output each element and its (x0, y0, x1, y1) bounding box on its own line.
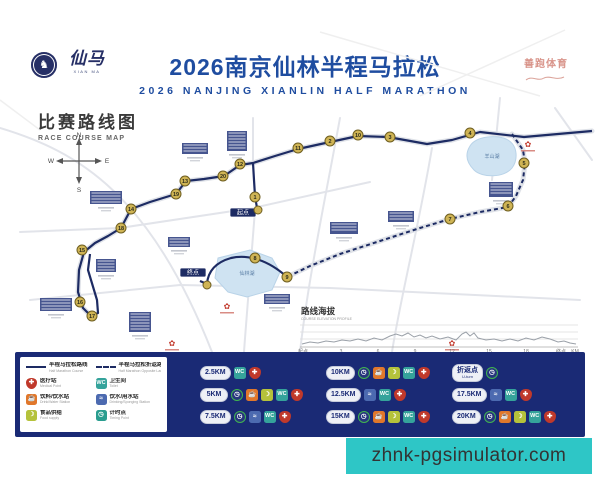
map-section-title: 比赛路线图 RACE COURSE MAP (38, 108, 138, 142)
svg-text:18: 18 (118, 226, 124, 232)
km-marker: 10 (353, 130, 363, 140)
km-station-row: 2.5KMWC✚ (200, 362, 326, 384)
svg-text:✿: ✿ (449, 339, 456, 348)
km-marker: 5 (519, 158, 529, 168)
route-solid-main (78, 131, 592, 316)
svg-text:7: 7 (448, 217, 451, 223)
legend-item-label-zh: 食品供给 (40, 410, 62, 417)
km-marker: 4 (465, 128, 475, 138)
km-station-row: 15KM◷☕☽WC✚ (326, 406, 452, 428)
svg-text:6: 6 (506, 204, 509, 210)
km-marker: 19 (171, 189, 181, 199)
timer-icon: ◷ (358, 367, 370, 379)
sponge-icon: ≈ (364, 389, 376, 401)
building-icon (388, 211, 414, 229)
start-point-label: 起点 (230, 208, 256, 217)
building-icon (264, 294, 290, 311)
km-station-row: 7.5KM◷≈WC✚ (200, 406, 326, 428)
main-road (78, 131, 592, 316)
elevation-title: 路线海拔 (301, 306, 336, 316)
legend-item-label-zh: 半程马拉松折返路线 (119, 362, 162, 369)
svg-text:10: 10 (355, 133, 361, 139)
svg-text:9: 9 (285, 275, 288, 281)
legend-panel: 半程马拉松路线Half Marathon Course半程马拉松折返路线Half… (20, 357, 167, 432)
elevation-gridlines (300, 325, 578, 339)
legend-item-label-en: Half Marathon Opposite Lane (119, 369, 162, 373)
legend-item-label-en: Drink/Water Station (40, 400, 70, 404)
medical-icon: ✚ (394, 389, 406, 401)
timer-icon: ◷ (231, 389, 243, 401)
scenic-spot-icons: ✿✿✿✿ (165, 140, 535, 351)
km-label-pill: 17.5KM (452, 388, 487, 402)
drink-icon: ☕ (26, 394, 37, 405)
km-marker: 9 (282, 272, 292, 282)
km-marker: 2 (325, 136, 335, 146)
finish-point-label: 终点 (180, 268, 206, 277)
svg-text:15: 15 (79, 248, 85, 254)
medical-icon: ✚ (26, 378, 37, 389)
solid-route-line-icon (26, 366, 46, 368)
course-route (78, 131, 592, 316)
wc-icon: WC (379, 389, 391, 401)
svg-text:终点: 终点 (187, 269, 199, 277)
legend-item: ✚医疗站Medical Point (26, 378, 92, 389)
legend-bar: 半程马拉松路线Half Marathon Course半程马拉松折返路线Half… (15, 352, 585, 437)
drink-icon: ☕ (246, 389, 258, 401)
legend-item: WC卫生间Toilet (96, 378, 162, 389)
scenic-flower-icon: ✿ (165, 339, 179, 351)
building-icon (129, 312, 151, 339)
svg-text:17: 17 (89, 314, 95, 320)
building-icon (168, 237, 190, 254)
km-label-pill: 2.5KM (200, 366, 231, 380)
scenic-flower-icon: ✿ (220, 302, 234, 314)
medical-icon: ✚ (249, 367, 261, 379)
xianma-logo-zh: 仙马 (66, 50, 108, 69)
timer-icon: ◷ (484, 411, 496, 423)
wc-icon: WC (234, 367, 246, 379)
drink-icon: ☕ (373, 367, 385, 379)
xianma-logo-en: XIAN MA (66, 69, 108, 74)
svg-text:8: 8 (253, 256, 256, 262)
elevation-profile: 路线海拔 COURSE ELEVATION PROFILE 起点36912151… (298, 306, 579, 355)
legend-item-label-zh: 计时点 (110, 410, 129, 417)
km-marker: 1 (250, 192, 260, 202)
scenic-flower-icon: ✿ (445, 339, 459, 351)
drink-icon: ☕ (499, 411, 511, 423)
legend-item: 半程马拉松路线Half Marathon Course (26, 362, 92, 373)
wc-icon: WC (403, 367, 415, 379)
legend-item-label-en: Drinking/Sponging Station (110, 400, 150, 404)
map-section-title-zh: 比赛路线图 (38, 108, 138, 133)
wc-icon: WC (276, 389, 288, 401)
legend-item-label-en: Timing Point (110, 416, 129, 420)
km-marker: 7 (445, 214, 455, 224)
svg-text:13: 13 (182, 179, 188, 185)
food-icon: ☽ (261, 389, 273, 401)
svg-text:✿: ✿ (169, 339, 176, 348)
map-section-title-en: RACE COURSE MAP (38, 135, 138, 142)
svg-text:19: 19 (173, 192, 179, 198)
km-label-pill: 7.5KM (200, 410, 231, 424)
svg-text:4: 4 (468, 131, 472, 137)
km-station-row: 20KM◷☕☽WC✚ (452, 406, 578, 428)
svg-text:✿: ✿ (224, 302, 231, 311)
legend-item: ≈饮水/用水站Drinking/Sponging Station (96, 394, 162, 405)
xianma-logo: 仙马 XIAN MA (66, 50, 108, 74)
svg-text:16: 16 (77, 300, 83, 306)
medical-icon: ✚ (279, 411, 291, 423)
building-icon (90, 191, 122, 211)
km-station-row: 5KM◷☕☽WC✚ (200, 384, 326, 406)
legend-item-label-zh: 半程马拉松路线 (49, 362, 88, 369)
medical-icon: ✚ (418, 367, 430, 379)
legend-item-label-en: Half Marathon Course (49, 369, 88, 373)
km-station-row: 12.5KM≈WC✚ (326, 384, 452, 406)
km-marker: 18 (116, 223, 126, 233)
legend-item-label-zh: 医疗站 (40, 378, 61, 385)
km-label-pill: 10KM (326, 366, 355, 380)
route-solid-start-branch (253, 163, 257, 208)
wc-icon: WC (96, 378, 107, 389)
svg-text:2: 2 (328, 139, 331, 145)
km-station-row: 折返点U-turn◷ (452, 362, 578, 384)
km-marker: 3 (385, 132, 395, 142)
svg-text:20: 20 (220, 174, 226, 180)
medical-icon: ✚ (418, 411, 430, 423)
svg-text:S: S (77, 187, 82, 194)
lake-xianlin-label: 仙林湖 (239, 270, 254, 277)
route-solid-lake-loop (200, 257, 287, 284)
timer-icon: ◷ (358, 411, 370, 423)
km-station-row: 10KM◷☕☽WC✚ (326, 362, 452, 384)
svg-text:✿: ✿ (525, 140, 532, 149)
legend-item: ◷计时点Timing Point (96, 410, 162, 421)
route-dashed-opposite-lane (287, 134, 525, 277)
event-title: 2026南京仙林半程马拉松 2026 NANJING XIANLIN HALF … (120, 48, 490, 97)
legend-item-label-zh: 饮料/饮水站 (40, 394, 70, 401)
timer-icon: ◷ (486, 367, 498, 379)
svg-text:14: 14 (128, 207, 135, 213)
dashed-route-line-icon (96, 366, 116, 368)
building-icon (96, 259, 116, 279)
food-icon: ☽ (388, 411, 400, 423)
km-label-pill: 12.5KM (326, 388, 361, 402)
food-icon: ☽ (388, 367, 400, 379)
km-marker: 16 (75, 297, 85, 307)
legend-item: 半程马拉松折返路线Half Marathon Opposite Lane (96, 362, 162, 373)
svg-text:12: 12 (237, 162, 243, 168)
building-icon (489, 182, 513, 204)
svg-text:起点: 起点 (237, 209, 249, 217)
food-icon: ☽ (514, 411, 526, 423)
food-icon: ☽ (26, 410, 37, 421)
wc-icon: WC (505, 389, 517, 401)
sponge-icon: ≈ (490, 389, 502, 401)
drink-icon: ☕ (373, 411, 385, 423)
km-label-pill: 5KM (200, 388, 228, 402)
svg-text:5: 5 (522, 161, 525, 167)
lakes: 羊山湖 仙林湖 (215, 137, 516, 297)
medical-icon: ✚ (544, 411, 556, 423)
km-marker: 11 (293, 143, 303, 153)
race-course-map-poster: ♞ 仙马 XIAN MA 2026南京仙林半程马拉松 2026 NANJING … (0, 0, 600, 480)
km-marker: 14 (126, 204, 136, 214)
start-finish-labels: 起点终点 (180, 206, 262, 289)
watermark-text: zhnk-pgsimulator.com (372, 445, 567, 467)
stamp-script-squiggle (524, 74, 568, 83)
km-station-grid: 2.5KMWC✚5KM◷☕☽WC✚7.5KM◷≈WC✚10KM◷☕☽WC✚12.… (200, 362, 578, 428)
compass-icon (56, 138, 102, 184)
legend-item: ☽食品供给Food supply (26, 410, 92, 421)
km-marker: 6 (503, 201, 513, 211)
km-station-row: 17.5KM≈WC✚ (452, 384, 578, 406)
svg-text:11: 11 (295, 146, 301, 152)
km-label-pill: 20KM (452, 410, 481, 424)
horse-icon: ♞ (39, 60, 49, 71)
lake-yangshan-label: 羊山湖 (484, 153, 499, 160)
km-markers: 1234567891011121314151617181920 (75, 128, 529, 321)
svg-text:3: 3 (388, 135, 391, 141)
legend-item-label-zh: 饮水/用水站 (110, 394, 150, 401)
sponge-icon: ≈ (249, 411, 261, 423)
legend-item-label-en: Toilet (110, 384, 127, 388)
svg-text:W: W (48, 158, 55, 165)
event-title-zh: 2026南京仙林半程马拉松 (120, 48, 490, 82)
km-marker: 15 (77, 245, 87, 255)
wc-icon: WC (529, 411, 541, 423)
wc-icon: WC (264, 411, 276, 423)
km-marker: 13 (180, 176, 190, 186)
building-icon (227, 131, 247, 158)
scenic-flower-icon: ✿ (521, 140, 535, 152)
km-label-pill: 折返点U-turn (452, 364, 483, 382)
legend-item-label-zh: 卫生间 (110, 378, 127, 385)
timer-icon: ◷ (234, 411, 246, 423)
building-icon (40, 298, 72, 318)
wc-icon: WC (403, 411, 415, 423)
legend-item-label-en: Medical Point (40, 384, 61, 388)
medical-icon: ✚ (520, 389, 532, 401)
timer-icon: ◷ (96, 410, 107, 421)
building-icons (40, 131, 513, 339)
legend-item: ☕饮料/饮水站Drink/Water Station (26, 394, 92, 405)
event-title-en: 2026 NANJING XIANLIN HALF MARATHON (120, 85, 490, 97)
svg-text:1: 1 (253, 195, 256, 201)
legend-item-label-en: Food supply (40, 416, 62, 420)
building-icon (330, 222, 358, 241)
medical-icon: ✚ (291, 389, 303, 401)
km-label-sub: U-turn (457, 375, 478, 379)
lake-xianlin (215, 250, 280, 297)
km-marker: 8 (250, 253, 260, 263)
sponsor-stamp: 善跑体育 (520, 55, 572, 88)
elevation-subtitle: COURSE ELEVATION PROFILE (301, 317, 353, 321)
sponsor-stamp-text: 善跑体育 (520, 55, 572, 70)
km-marker: 17 (87, 311, 97, 321)
km-marker: 12 (235, 159, 245, 169)
xianma-circle-badge-icon: ♞ (31, 52, 57, 78)
svg-text:E: E (105, 158, 110, 165)
sponge-icon: ≈ (96, 394, 107, 405)
lake-yangshan (467, 137, 516, 176)
elevation-line (302, 332, 576, 344)
km-label-pill: 15KM (326, 410, 355, 424)
watermark-banner: zhnk-pgsimulator.com (346, 438, 592, 474)
km-marker: 20 (218, 171, 228, 181)
building-icon (182, 143, 208, 161)
